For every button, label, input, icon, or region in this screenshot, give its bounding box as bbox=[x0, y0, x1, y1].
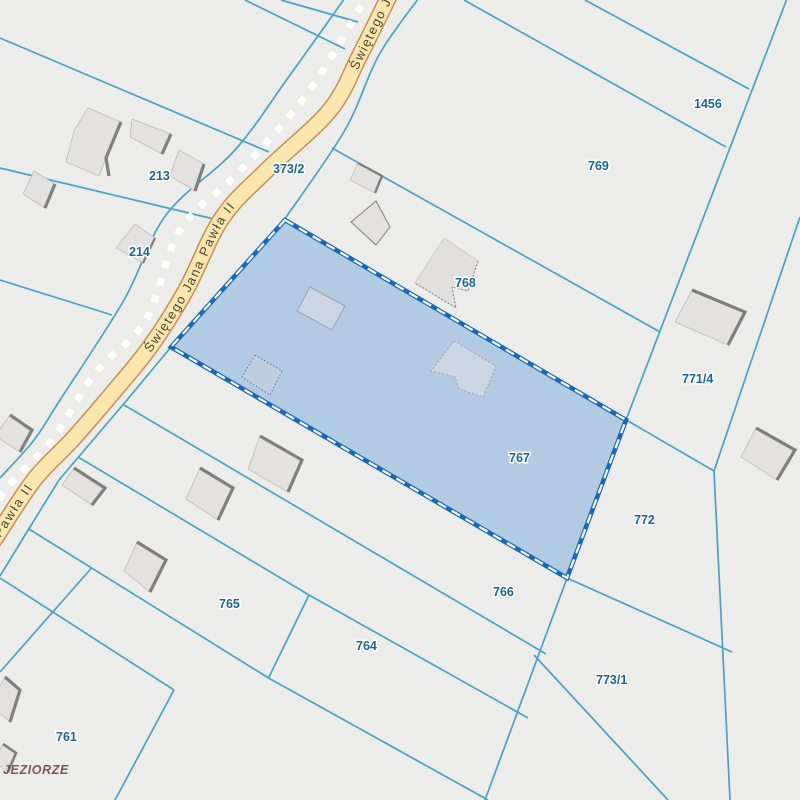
svg-text:767: 767 bbox=[509, 451, 530, 465]
svg-text:768: 768 bbox=[455, 276, 476, 290]
svg-text:766: 766 bbox=[493, 585, 514, 599]
svg-text:771/4: 771/4 bbox=[682, 372, 713, 386]
svg-text:1456: 1456 bbox=[694, 97, 722, 111]
svg-text:373/2: 373/2 bbox=[273, 162, 304, 176]
svg-text:772: 772 bbox=[634, 513, 655, 527]
svg-text:769: 769 bbox=[588, 159, 609, 173]
svg-text:773/1: 773/1 bbox=[596, 673, 627, 687]
svg-text:764: 764 bbox=[356, 639, 377, 653]
svg-text:765: 765 bbox=[219, 597, 240, 611]
svg-text:214: 214 bbox=[129, 245, 150, 259]
svg-text:761: 761 bbox=[56, 730, 77, 744]
svg-text:JEZIORZE: JEZIORZE bbox=[3, 763, 69, 777]
svg-text:213: 213 bbox=[149, 169, 170, 183]
